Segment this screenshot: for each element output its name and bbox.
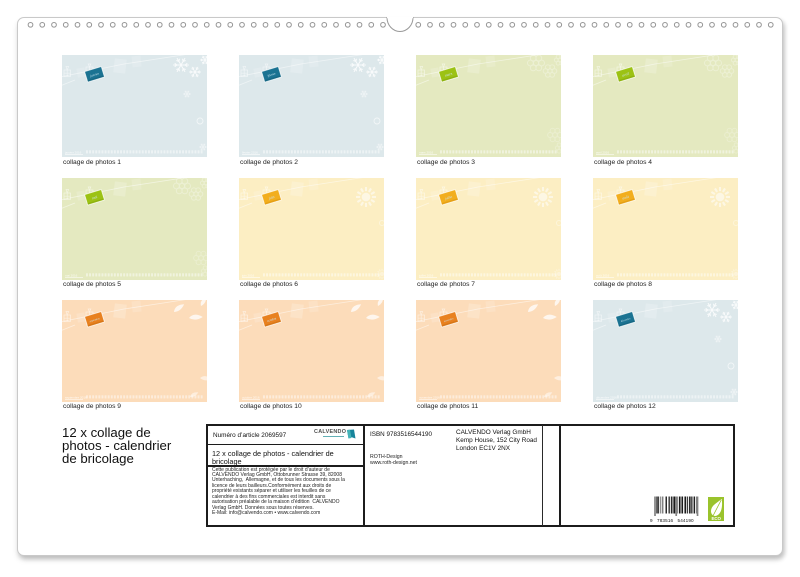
svg-text:juillet 2016: juillet 2016: [418, 273, 434, 277]
svg-text:544190: 544190: [678, 518, 695, 523]
svg-text:août 2016: août 2016: [596, 273, 610, 277]
svg-text:ECO: ECO: [711, 516, 721, 521]
svg-text:juin 2016: juin 2016: [241, 273, 255, 277]
svg-text:septembre 2016: septembre 2016: [65, 395, 87, 399]
svg-text:783516: 783516: [657, 518, 674, 523]
svg-text:9: 9: [650, 518, 653, 523]
svg-text:décembre 2016: décembre 2016: [596, 395, 617, 399]
svg-text:janvier 2016: janvier 2016: [64, 150, 82, 154]
svg-text:mai 2016: mai 2016: [65, 273, 78, 277]
svg-text:novembre 2016: novembre 2016: [419, 395, 440, 399]
svg-text:avril 2016: avril 2016: [596, 150, 609, 154]
svg-text:octobre 2016: octobre 2016: [242, 395, 260, 399]
svg-text:février 2016: février 2016: [242, 150, 258, 154]
svg-text:mars 2016: mars 2016: [419, 150, 434, 154]
